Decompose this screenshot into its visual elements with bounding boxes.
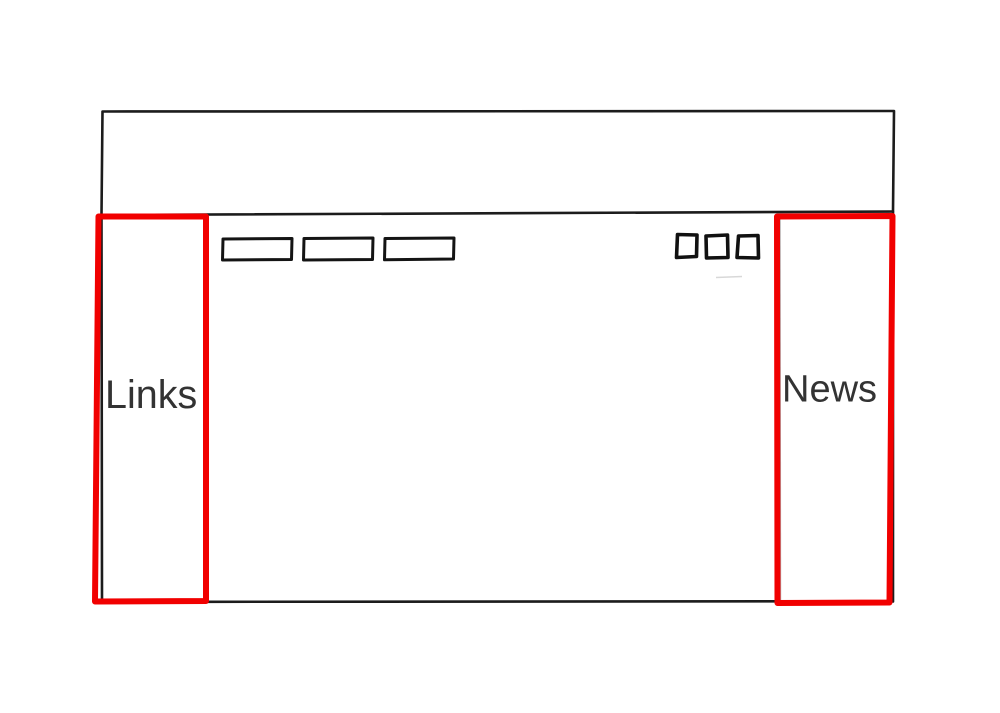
svg-text:Links: Links bbox=[105, 373, 197, 417]
svg-text:News: News bbox=[782, 369, 877, 411]
